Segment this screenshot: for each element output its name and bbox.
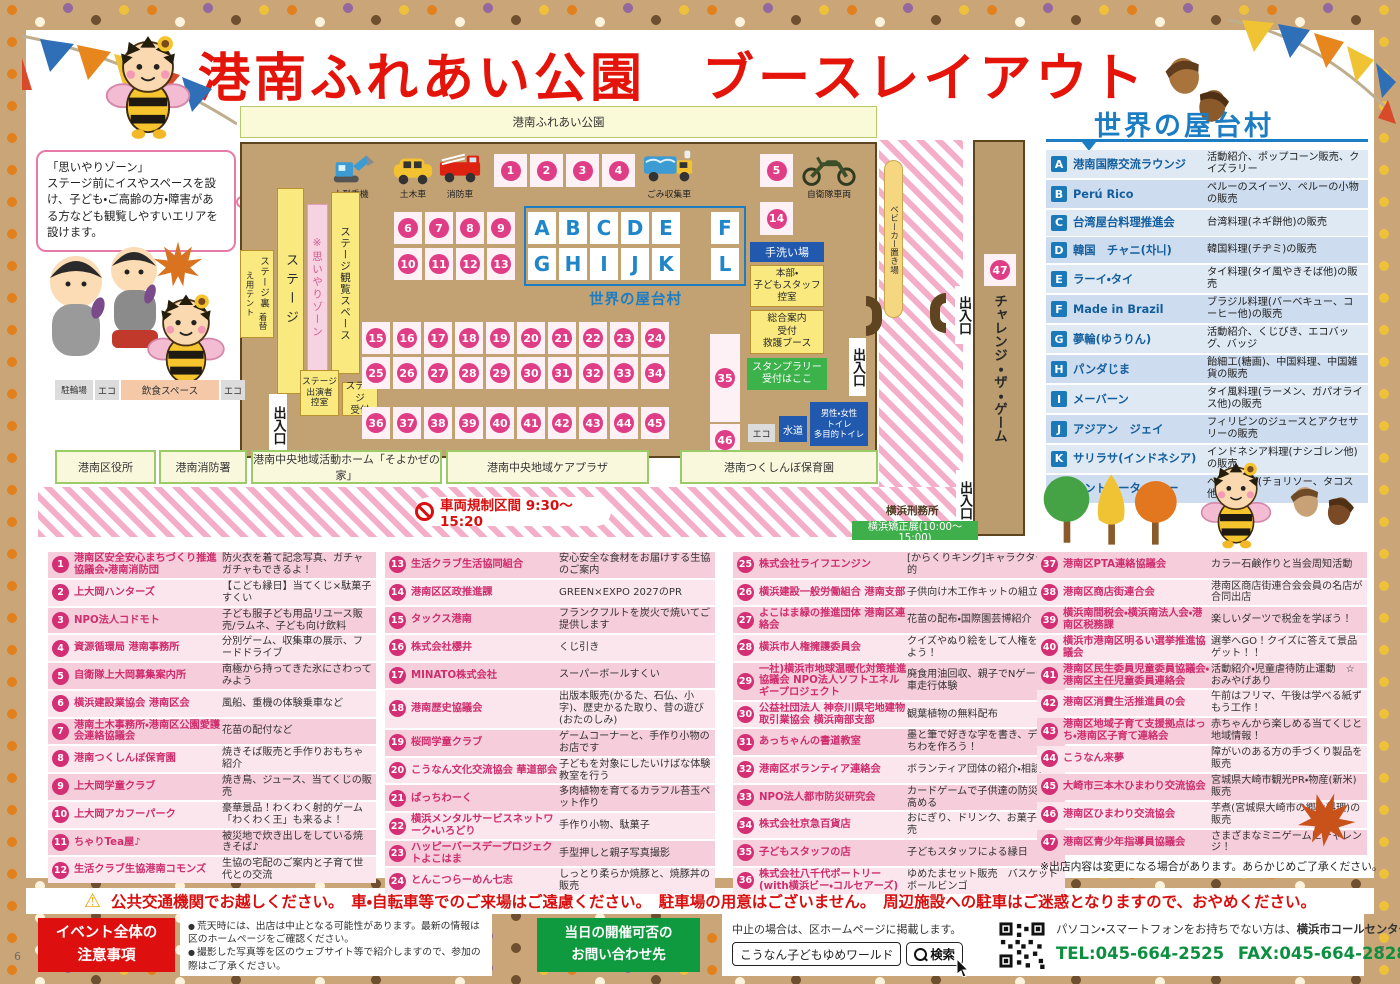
stall-desc: ペルーのスイーツ、ペルーの小物の販売	[1207, 182, 1363, 206]
map-booth-cell: 22	[579, 322, 607, 354]
booth-row: 29一社)横浜市地球温暖化対策推進協議会 NPO法人ソフトエネルギープロジェクト…	[733, 663, 1065, 700]
map-booth-cell: 12	[456, 248, 484, 280]
booth-number-badge: 9	[52, 778, 69, 795]
stall-row: Hパンダじま飴細工(糖画)、中国料理、中国雑貨の販売	[1046, 355, 1368, 383]
booth-number-badge: 42	[552, 413, 572, 433]
booth-name: こうなん来夢	[1063, 753, 1211, 765]
booth-desc: カラー石鹸作りと当会周知活動	[1211, 559, 1363, 571]
stall-letter-badge: B	[1051, 186, 1067, 202]
booth-row: 9上大岡学童クラブ焼き鳥、ジュース、当てくじの販売	[48, 774, 376, 800]
booth-number-badge: 39	[1041, 612, 1058, 629]
booth-number-badge: 32	[737, 761, 754, 778]
qr-code	[998, 921, 1046, 969]
booth-row: 44こうなん来夢障がいのある方の手づくり製品を販売	[1037, 746, 1367, 772]
booth-row: 32港南区ボランティア連絡会ボランティア団体の紹介・相談	[733, 757, 1065, 783]
booth-number-badge: 6	[52, 695, 69, 712]
booth-name: 横浜市港南区明るい選挙推進協議会	[1063, 636, 1211, 659]
booth-number-badge: 16	[389, 639, 406, 656]
booth-desc: 出版本販売(かるた、石仏、小字)、歴史かるた取り、昔の遊び(おたのしみ)	[559, 691, 711, 727]
stall-desc: 飴細工(糖画)、中国料理、中国雑貨の販売	[1207, 357, 1363, 381]
map-stall-cell: C	[590, 212, 618, 244]
stall-desc: 韓国料理(チヂミ)の販売	[1207, 244, 1363, 256]
map-booth-cell: 26	[393, 357, 421, 389]
map-booth-cell: 7	[425, 212, 453, 244]
booth-number-badge: 32	[583, 363, 603, 383]
map-booth-cell: 20	[517, 322, 545, 354]
map-booth-cell: 17	[424, 322, 452, 354]
fire-truck-icon	[438, 150, 482, 186]
stall-letter-badge: C	[1051, 215, 1067, 231]
bee-mascot-icon	[100, 32, 196, 144]
booth-desc: 焼き鳥、ジュース、当てくじの販売	[222, 775, 372, 799]
booth-row: 25株式会社ライフエンジン[からくりキング]キャラクター射的	[733, 552, 1065, 578]
stall-letter-badge: F	[1051, 301, 1067, 317]
vehicle-label: 土木車	[386, 187, 440, 200]
booth-row: 28横浜市人権擁護委員会クイズやぬり絵をして人権を考えよう！	[733, 635, 1065, 661]
stall-row: C台湾屋台料理推進会台湾料理(ネギ餅他)の販売	[1046, 210, 1368, 236]
booth-name: NPO法人都市防災研究会	[759, 792, 907, 804]
map-stall-cell: D	[621, 212, 649, 244]
stall-desc: 台湾料理(ネギ餅他)の販売	[1207, 217, 1363, 229]
booth-row: 10上大岡アカフーパーク豪華景品！わくわく射的ゲーム「わくわく王」も来るよ！	[48, 802, 376, 828]
booth-number-badge: 38	[428, 413, 448, 433]
booth-row: 3NPO法人コドモト子ども服子ども用品リユース販売/ラムネ、子ども向け飲料	[48, 608, 376, 634]
booth-number-badge: 2	[537, 161, 557, 181]
stall-letter-badge: A	[1051, 156, 1067, 172]
booth-number-badge: 40	[1041, 639, 1058, 656]
booth-name: 港南区地域子育て支援拠点はっち・港南区子育て連絡会	[1063, 719, 1211, 742]
booth-row: 14港南区区政推進課GREEN×EXPO 2027のPR	[385, 580, 715, 606]
booth-number-badge: 3	[52, 612, 69, 629]
booth-name: NPO法人コドモト	[74, 615, 222, 627]
restriction-text: 車両規制区間 9:30～15:20	[440, 494, 611, 530]
booth-name: 港南歴史協議会	[411, 703, 559, 715]
booth-number-badge: 46	[1041, 806, 1058, 823]
eco-box-map: エコ	[748, 424, 775, 442]
booth-name: タックス港南	[411, 614, 559, 626]
booth-name: 横浜建設業協会 港南区会	[74, 698, 222, 710]
booth-name: あっちゃんの書道教室	[759, 736, 907, 748]
booth-number-badge: 42	[1041, 695, 1058, 712]
stage-view-box: ステージ観覧スペース	[331, 192, 360, 374]
world-stalls-title: 世界の屋台村	[1094, 104, 1274, 143]
map-booth-cell: 25	[362, 357, 390, 389]
stall-desc: ブラジル料理(バーベキュー、コーヒー他)の販売	[1207, 297, 1363, 321]
booth-number-badge: 20	[389, 762, 406, 779]
booth-number-badge: 26	[397, 363, 417, 383]
water-box: 水道	[779, 416, 807, 442]
booth-number-badge: 2	[52, 584, 69, 601]
map-stall-cell: G	[528, 248, 556, 280]
booth-name: こうなん文化交流協会 華道部会	[411, 765, 559, 777]
booth-desc: 【こども縁日】当てくじ×駄菓子すくい	[222, 581, 372, 605]
booth-number-badge: 30	[737, 706, 754, 723]
map-stall-cell: B	[559, 212, 587, 244]
booth-desc: 安心安全な食材をお届けする生協のご案内	[559, 553, 711, 577]
booth-name: 港南区PTA連絡協議会	[1063, 559, 1211, 571]
booth-row: 13生活クラブ生活協同組合安心安全な食材をお届けする生協のご案内	[385, 552, 715, 578]
booth-number-badge: 36	[366, 413, 386, 433]
booth-number-badge: 31	[552, 363, 572, 383]
booth-number-badge: 41	[521, 413, 541, 433]
map-booth-cell: 38	[424, 407, 452, 439]
booth-row: 15タックス港南フランクフルトを炭火で焼いてご提供します	[385, 607, 715, 633]
booth-row: 16株式会社櫻井くじ引き	[385, 635, 715, 661]
booth-row: 1港南区安全安心まちづくり推進協議会・港南消防団防火衣を着て記念写真、ガチャガチ…	[48, 552, 376, 578]
map-booth-cell: 9	[487, 212, 515, 244]
booth-number-badge: 17	[428, 328, 448, 348]
booth-desc: 多肉植物を育てるカラフル苔玉ペット作り	[559, 786, 711, 810]
booth-name: ハッピーバースデープロジェクトよこはま	[411, 842, 559, 865]
booth-name: ぱっちわーく	[411, 793, 559, 805]
search-input: こうなん子どもゆめワールド	[732, 942, 901, 966]
booth-number-badge: 31	[737, 734, 754, 751]
booth-number-badge: 39	[459, 413, 479, 433]
stage-box: ステージ	[277, 188, 304, 394]
search-button: 検索	[906, 942, 963, 966]
booth-name: 港南区民生委員児童委員協議会・港南区主任児童委員連絡会	[1063, 664, 1211, 687]
bee-mascot-right-icon	[1196, 460, 1276, 552]
eco-box-left: エコ	[95, 380, 119, 400]
no-entry-icon	[415, 502, 434, 521]
booth-row: 41港南区民生委員児童委員協議会・港南区主任児童委員連絡会活動紹介・児童虐待防止…	[1037, 663, 1367, 689]
booth-name: 横浜南間税会・横浜南法人会・港南区税務課	[1063, 608, 1211, 631]
booth-name: 自衛隊上大岡募集案内所	[74, 670, 222, 682]
booth-desc: しっとり柔らか焼豚と、焼豚丼の販売	[559, 869, 711, 893]
stall-name: 韓国 チャニ(차니)	[1073, 244, 1207, 257]
booth-number-badge: 35	[715, 368, 735, 388]
booth-number-badge: 37	[397, 413, 417, 433]
map-booth-cell: 11	[425, 248, 453, 280]
booth-row: 21ぱっちわーく多肉植物を育てるカラフル苔玉ペット作り	[385, 785, 715, 811]
booth-desc: 被災地で炊き出しをしている焼きそば♪	[222, 831, 372, 855]
booth-row: 27よこはま緑の推進団体 港南区連絡会花苗の配布・国際園芸博紹介	[733, 607, 1065, 633]
booth-desc: くじ引き	[559, 642, 711, 654]
booth-number-badge: 30	[521, 363, 541, 383]
booth-list-col-1: 1港南区安全安心まちづくり推進協議会・港南消防団防火衣を着て記念写真、ガチャガチ…	[48, 552, 376, 885]
booth-row: 37港南区PTA連絡協議会カラー石鹸作りと当会周知活動	[1037, 552, 1367, 578]
booth-name: 桜岡学童クラブ	[411, 737, 559, 749]
booth-number-badge: 44	[614, 413, 634, 433]
map-booth-cell-47: 47	[984, 254, 1016, 286]
building-nursery: 港南つくしんぼ保育園	[680, 450, 878, 484]
stall-name: 港南国際交流ラウンジ	[1073, 158, 1207, 171]
booth-row: 20こうなん文化交流協会 華道部会子どもを対象にしたいけばな体験教室を行う	[385, 758, 715, 784]
map-booth-row-10-13: 10111213	[394, 248, 515, 280]
map-booth-cell: 3	[566, 154, 599, 187]
map-booth-row-25-34: 25262728293031323334	[362, 357, 669, 389]
booth-number-badge: 36	[737, 872, 754, 889]
map-booth-cell: 1	[494, 154, 527, 187]
booth-name: 港南土木事務所・港南区公園愛護会連絡協議会	[74, 720, 222, 743]
booth-desc: 楽しいダーツで税金を学ぼう！	[1211, 614, 1363, 626]
booth-row: 24とんこつらーめん七志しっとり柔らか焼豚と、焼豚丼の販売	[385, 868, 715, 894]
booth-number-badge: 41	[1041, 667, 1058, 684]
world-stalls-list: A港南国際交流ラウンジ活動紹介、ポップコーン販売、クイズラリーBPerú Ric…	[1046, 150, 1368, 505]
booth-desc: 手型押しと親子写真撮影	[559, 848, 711, 860]
map-stall-cell: H	[559, 248, 587, 280]
map-booth-cell-35: 35	[710, 334, 740, 422]
booth-desc: スーパーボールすくい	[559, 669, 711, 681]
map-stall-row-G-K: GHIJK	[528, 248, 680, 280]
booth-desc: 障がいのある方の手づくり製品を販売	[1211, 747, 1363, 771]
notice-item: 荒天時には、出店は中止となる可能性があります。最新の情報は区のホームページをご確…	[188, 920, 484, 946]
flyer-page: { "page": { "title": "港南ふれあい公園 ブースレイアウト"…	[0, 0, 1400, 984]
booth-row: 7港南土木事務所・港南区公園愛護会連絡協議会花苗の配付など	[48, 719, 376, 745]
stall-desc: タイ風料理(ラーメン、ガパオライス他)の販売	[1207, 387, 1363, 411]
booth-name: ちゃりTea屋♪	[74, 837, 222, 849]
acorns-right-icon	[1282, 468, 1366, 534]
stall-row: Eラーイ・タイタイ料理(タイ風やきそば他)の販売	[1046, 265, 1368, 293]
booth-number-badge: 35	[737, 844, 754, 861]
search-icon	[914, 948, 927, 961]
map-stall-cell: E	[652, 212, 680, 244]
booth-number-badge: 13	[389, 556, 406, 573]
booth-name: とんこつらーめん七志	[411, 875, 559, 887]
booth-disclaimer: ※出店内容は変更になる場合があります。あらかじめご了承ください。	[1040, 858, 1383, 874]
booth-desc: ゲームコーナーと、手作り小物のお店です	[559, 731, 711, 755]
booth-name: 港南区ボランティア連絡会	[759, 764, 907, 776]
stall-row: Jアジアン ジェイフィリピンのジュースとアクセサリーの販売	[1046, 415, 1368, 443]
map-booth-row-15-24: 15161718192021222324	[362, 322, 669, 354]
vehicle-label: 自衛隊車両	[798, 187, 860, 200]
stall-name: ラーイ・タイ	[1073, 273, 1207, 286]
booth-name: 株式会社ライフエンジン	[759, 559, 907, 571]
booth-desc: 子どもを対象にしたいけばな体験教室を行う	[559, 759, 711, 783]
booth-number-badge: 17	[389, 667, 406, 684]
booth-row: 33NPO法人都市防災研究会カードゲームで子供達の防災力を高める	[733, 785, 1065, 811]
booth-desc: 子ども服子ども用品リユース販売/ラムネ、子ども向け飲料	[222, 609, 372, 633]
exit-label-left: 出入口	[269, 394, 287, 456]
map-booth-cell: 21	[548, 322, 576, 354]
notice-item: 撮影した写真等を区のウェブサイト等で紹介しますので、参加の際はご了承ください。	[188, 946, 484, 972]
booth-number-badge: 29	[737, 673, 754, 690]
map-booth-cell: 19	[486, 322, 514, 354]
booth-name: よこはま緑の推進団体 港南区連絡会	[759, 608, 907, 631]
booth-name: 港南区商店街連合会	[1063, 587, 1211, 599]
booth-list-col-3: 25株式会社ライフエンジン[からくりキング]キャラクター射的26横浜建設一般労働…	[733, 552, 1065, 896]
booth-desc: 午前はフリマ、午後は学べる紙ずもう工作！	[1211, 691, 1363, 715]
exit-label-map-right: 出入口	[849, 338, 866, 396]
booth-desc: 南極から持ってきた氷にさわってみよう	[222, 664, 372, 688]
challenge-label: チャレンジ・ザ・ゲーム	[989, 294, 1009, 524]
booth-name: 生活クラブ生協港南コモンズ	[74, 864, 222, 876]
booth-number-badge: 6	[398, 218, 418, 238]
booth-row: 36株式会社八千代ポートリー(with横浜ビー・コルセアーズ)ゆめたまセット販売…	[733, 868, 1065, 894]
booth-name: 株式会社櫻井	[411, 642, 559, 654]
omoiyari-zone-box: ※思いやりゾーン	[307, 204, 328, 372]
booth-name: 港南つくしんぼ保育園	[74, 753, 222, 765]
booth-number-badge: 3	[573, 161, 593, 181]
booth-number-badge: 43	[1041, 723, 1058, 740]
map-booth-cell: 37	[393, 407, 421, 439]
stall-letter-badge: H	[1051, 361, 1067, 377]
map-booth-cell: 28	[455, 357, 483, 389]
booth-number-badge: 21	[389, 790, 406, 807]
stall-letter-badge: K	[1051, 451, 1067, 467]
booth-number-badge: 13	[491, 254, 511, 274]
cursor-icon	[956, 959, 972, 977]
map-booth-cell: 18	[455, 322, 483, 354]
stall-letter-badge: G	[1051, 331, 1067, 347]
building-care-plaza: 港南中央地域ケアプラザ	[446, 450, 649, 484]
stroller-label: ベビーカー置き場	[888, 205, 900, 274]
booth-name: 公益社団法人 神奈川県宅地建物取引業協会 横浜南部支部	[759, 703, 907, 726]
toilet-box: 男性・女性 トイレ 多目的トイレ	[810, 402, 868, 446]
booth-name: 横浜建設一般労働組合 港南支部	[759, 587, 907, 599]
map-booth-cell: 44	[610, 407, 638, 439]
omoiyari-note: 「思いやりゾーン」 ステージ前にイスやスペースを設け、子ども・ご高齢の方・障害が…	[36, 150, 236, 252]
booth-number-badge: 7	[429, 218, 449, 238]
booth-desc: ゆめたまセット販売 バスケットボールビンゴ	[907, 869, 1061, 893]
map-booth-row-36-45: 36373839404142434445	[362, 407, 669, 439]
booth-number-badge: 10	[52, 806, 69, 823]
booth-row: 4資源循環局 港南事務所分別ゲーム、収集車の展示、フードドライブ	[48, 635, 376, 661]
booth-row: 11ちゃりTea屋♪被災地で炊き出しをしている焼きそば♪	[48, 830, 376, 856]
booth-row: 40横浜市港南区明るい選挙推進協議会選挙へGO！クイズに答えて景品ゲット！！	[1037, 635, 1367, 661]
map-booth-cell: 23	[610, 322, 638, 354]
map-booth-cell: 42	[548, 407, 576, 439]
booth-number-badge: 16	[397, 328, 417, 348]
building-soyokaze-home: 港南中央地域活動ホーム「そよかぜの家」	[251, 450, 442, 484]
contact-detail-box: 中止の場合は、区ホームページに掲載します。 こうなん子どもゆめワールド 検索	[722, 914, 1364, 976]
booth-desc: 生協の宅配のご案内と子育て世代との交流	[222, 858, 372, 882]
map-booth-cell: 34	[641, 357, 669, 389]
booth-row: 31あっちゃんの書道教室墨と筆で好きな字を書き、デコうちわを作ろう！	[733, 729, 1065, 755]
booth-number-badge: 23	[614, 328, 634, 348]
map-booth-cell: 24	[641, 322, 669, 354]
hand-wash-box: 手洗い場	[750, 242, 824, 262]
map-booth-cell-5: 5	[760, 154, 793, 187]
booth-name: 横浜市人権擁護委員会	[759, 642, 907, 654]
stroller-area: ベビーカー置き場	[884, 160, 903, 318]
map-booth-row-6-9: 6789	[394, 212, 515, 244]
map-booth-cell: 32	[579, 357, 607, 389]
exit-label-bar-upper: 出入口	[955, 286, 972, 344]
booth-number-badge: 22	[583, 328, 603, 348]
stall-row: FMade in Brazilブラジル料理(バーベキュー、コーヒー他)の販売	[1046, 295, 1368, 323]
booth-number-badge: 27	[737, 612, 754, 629]
booth-number-badge: 4	[609, 161, 629, 181]
booth-name: 港南区ひまわり交流協会	[1063, 809, 1211, 821]
stage-staff-box: ステージ 出演者 控室	[300, 370, 339, 416]
booth-number-badge: 43	[583, 413, 603, 433]
booth-row: 26横浜建設一般労働組合 港南支部子供向け木工作キットの組立て	[733, 580, 1065, 606]
booth-number-badge: 47	[1041, 834, 1058, 851]
booth-number-badge: 28	[737, 639, 754, 656]
booth-row: 18港南歴史協議会出版本販売(かるた、石仏、小字)、歴史かるた取り、昔の遊び(お…	[385, 690, 715, 728]
booth-name: 一社)横浜市地球温暖化対策推進協議会 NPO法人ソフトエネルギープロジェクト	[759, 664, 907, 699]
map-yatai-label: 世界の屋台村	[548, 288, 723, 309]
vehicle-restriction-badge: 車両規制区間 9:30～15:20	[415, 497, 611, 526]
booth-number-badge: 21	[552, 328, 572, 348]
excavator-icon	[328, 150, 376, 186]
booth-name: 港南区区政推進課	[411, 587, 559, 599]
map-booth-cell: 4	[602, 154, 635, 187]
dining-space-box: 飲食スペース	[121, 380, 219, 400]
stall-name: Perú Rico	[1073, 188, 1207, 201]
map-booth-cell: 41	[517, 407, 545, 439]
map-stall-cell: K	[652, 248, 680, 280]
booth-number-badge: 40	[490, 413, 510, 433]
booth-number-badge: 8	[52, 750, 69, 767]
booth-number-badge: 11	[429, 254, 449, 274]
booth-row: 30公益社団法人 神奈川県宅地建物取引業協会 横浜南部支部観葉植物の無料配布	[733, 702, 1065, 728]
tel-number: TEL:045-664-2525	[1056, 944, 1224, 963]
stall-row: G夢輪(ゆうりん)活動紹介、くじびき、エコバッグ、バッジ	[1046, 325, 1368, 353]
map-stall-cell: A	[528, 212, 556, 244]
booth-name: 大崎市三本木ひまわり交流協会	[1063, 781, 1211, 793]
stall-name: アジアン ジェイ	[1073, 423, 1207, 436]
map-booth-cell: 29	[486, 357, 514, 389]
map-booth-cell: 2	[530, 154, 563, 187]
notices-box: 荒天時には、出店は中止となる可能性があります。最新の情報は区のホームページをご確…	[180, 914, 492, 976]
booth-number-badge: 45	[645, 413, 665, 433]
booth-name: 港南区安全安心まちづくり推進協議会・港南消防団	[74, 553, 222, 576]
booth-number-badge: 25	[366, 363, 386, 383]
booth-number-badge: 5	[767, 161, 787, 181]
booth-number-badge: 5	[52, 668, 69, 685]
hq-box: 本部・ 子どもスタッフ 控室	[750, 265, 824, 307]
booth-desc: 赤ちゃんから楽しめる当てくじと地域情報！	[1211, 719, 1363, 743]
booth-list-col-2: 13生活クラブ生活協同組合安心安全な食材をお届けする生協のご案内14港南区区政推…	[385, 552, 715, 896]
changing-tent-box: ステージ裏 着替え用テント	[240, 250, 274, 338]
stall-letter-badge: D	[1051, 242, 1067, 258]
booth-number-badge: 26	[737, 584, 754, 601]
map-booth-cell: 33	[610, 357, 638, 389]
booth-number-badge: 9	[491, 218, 511, 238]
map-booth-cell: 40	[486, 407, 514, 439]
booth-number-badge: 15	[366, 328, 386, 348]
booth-number-badge: 19	[490, 328, 510, 348]
booth-number-badge: 25	[737, 556, 754, 573]
stamp-rally-box: スタンプラリー 受付はここ	[747, 358, 827, 390]
info-box: 総合案内 受付 救護ブース	[750, 310, 824, 354]
booth-row: 19桜岡学童クラブゲームコーナーと、手作り小物のお店です	[385, 730, 715, 756]
booth-name: 株式会社京急百貨店	[759, 819, 907, 831]
booth-number-badge: 19	[389, 734, 406, 751]
booth-name: 上大岡アカフーパーク	[74, 809, 222, 821]
prison-label: 横浜刑務所	[886, 503, 939, 518]
booth-name: 子どもスタッフの店	[759, 847, 907, 859]
booth-number-badge: 47	[990, 260, 1010, 280]
eco-box-left2: エコ	[221, 380, 245, 400]
map-booth-cell: 43	[579, 407, 607, 439]
maple-leaf-icon	[152, 238, 204, 290]
bike-parking-box: 駐輪場	[55, 380, 93, 400]
stage-back-label: ステージ裏	[258, 256, 269, 309]
booth-name: 資源循環局 港南事務所	[74, 642, 222, 654]
booth-desc: 手作り小物、駄菓子	[559, 820, 711, 832]
booth-name: 港南区青少年指導員協議会	[1063, 837, 1211, 849]
booth-number-badge: 38	[1041, 584, 1058, 601]
booth-number-badge: 27	[428, 363, 448, 383]
booth-name: 港南区消費生活推進員の会	[1063, 697, 1211, 709]
stall-letter-badge: I	[1051, 391, 1067, 407]
booth-number-badge: 12	[52, 862, 69, 879]
stall-row: A港南国際交流ラウンジ活動紹介、ポップコーン販売、クイズラリー	[1046, 150, 1368, 178]
stall-desc: フィリピンのジュースとアクセサリーの販売	[1207, 417, 1363, 441]
page-number-left: 6	[14, 950, 21, 963]
booth-number-badge: 8	[460, 218, 480, 238]
booth-number-badge: 14	[767, 209, 787, 229]
fax-number: FAX:045-664-2828	[1238, 944, 1400, 963]
booth-desc: 防火衣を着て記念写真、ガチャガチャもできるよ！	[222, 553, 372, 577]
stall-letter-badge: E	[1051, 271, 1067, 287]
stall-name: 夢輪(ゆうりん)	[1073, 333, 1207, 346]
booth-number-badge: 15	[389, 612, 406, 629]
booth-number-badge: 46	[715, 430, 735, 450]
